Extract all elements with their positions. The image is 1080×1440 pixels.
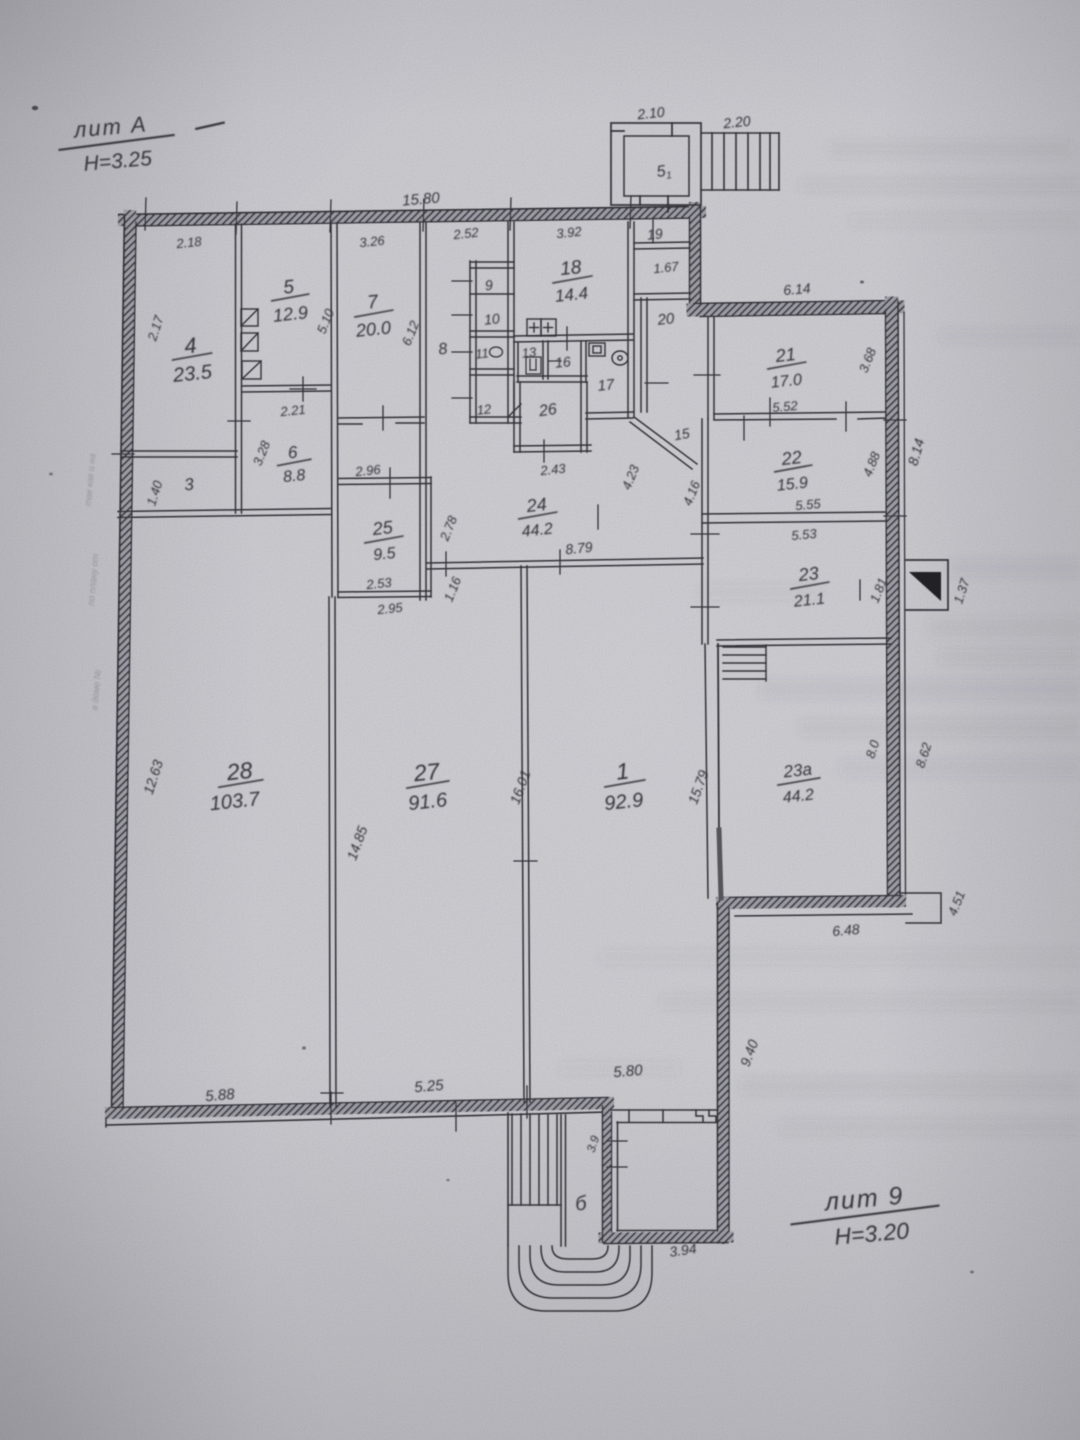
svg-text:3.92: 3.92 [556,224,583,242]
svg-text:21: 21 [774,344,797,366]
svg-text:2.21: 2.21 [279,402,307,420]
svg-text:28: 28 [224,757,253,786]
svg-text:2.96: 2.96 [354,462,382,480]
svg-text:20.0: 20.0 [354,317,392,341]
svg-text:8.8: 8.8 [282,467,306,486]
svg-text:5.88: 5.88 [205,1086,236,1106]
svg-text:10: 10 [483,310,500,328]
svg-text:19: 19 [646,225,663,243]
svg-text:20: 20 [656,310,676,329]
svg-text:25: 25 [371,517,395,539]
svg-text:22: 22 [780,447,803,469]
svg-text:2.18: 2.18 [175,234,203,252]
svg-text:44.2: 44.2 [782,787,815,807]
svg-text:12: 12 [476,401,493,418]
svg-text:23: 23 [797,563,820,585]
svg-text:23а: 23а [782,760,813,782]
svg-text:15: 15 [673,425,691,443]
svg-text:15.80: 15.80 [402,189,442,209]
svg-text:5.52: 5.52 [772,398,799,415]
svg-text:9.5: 9.5 [372,545,396,564]
svg-text:1: 1 [615,757,630,784]
svg-text:5.55: 5.55 [795,496,822,513]
svg-text:21.1: 21.1 [792,591,826,611]
svg-text:23.5: 23.5 [171,361,214,387]
svg-text:44.2: 44.2 [521,521,554,541]
svg-text:17: 17 [597,376,616,395]
svg-text:2.20: 2.20 [722,113,752,132]
svg-text:6.48: 6.48 [832,921,861,939]
svg-text:2.52: 2.52 [452,225,480,243]
svg-text:91.6: 91.6 [407,789,449,815]
svg-text:2.10: 2.10 [636,104,666,123]
svg-text:92.9: 92.9 [603,789,644,815]
svg-text:5.53: 5.53 [791,526,818,543]
svg-text:5.25: 5.25 [414,1077,445,1097]
svg-text:14.4: 14.4 [554,283,589,305]
svg-text:1.67: 1.67 [653,259,680,277]
svg-text:26: 26 [537,401,558,420]
svg-text:12.9: 12.9 [272,302,309,326]
svg-text:11: 11 [474,345,489,361]
svg-text:6.14: 6.14 [783,280,812,298]
svg-text:2.53: 2.53 [365,575,393,593]
svg-text:3.26: 3.26 [359,233,386,251]
svg-text:15.9: 15.9 [776,475,809,495]
svg-text:2.95: 2.95 [376,600,404,618]
svg-text:8.79: 8.79 [565,539,594,558]
svg-text:16: 16 [554,353,571,371]
svg-text:4: 4 [183,333,198,359]
svg-text:24: 24 [525,494,548,516]
svg-text:18: 18 [559,257,583,280]
svg-text:17.0: 17.0 [770,372,803,392]
svg-text:5.80: 5.80 [613,1062,644,1082]
svg-text:2.43: 2.43 [539,461,567,479]
svg-text:13: 13 [521,344,538,361]
